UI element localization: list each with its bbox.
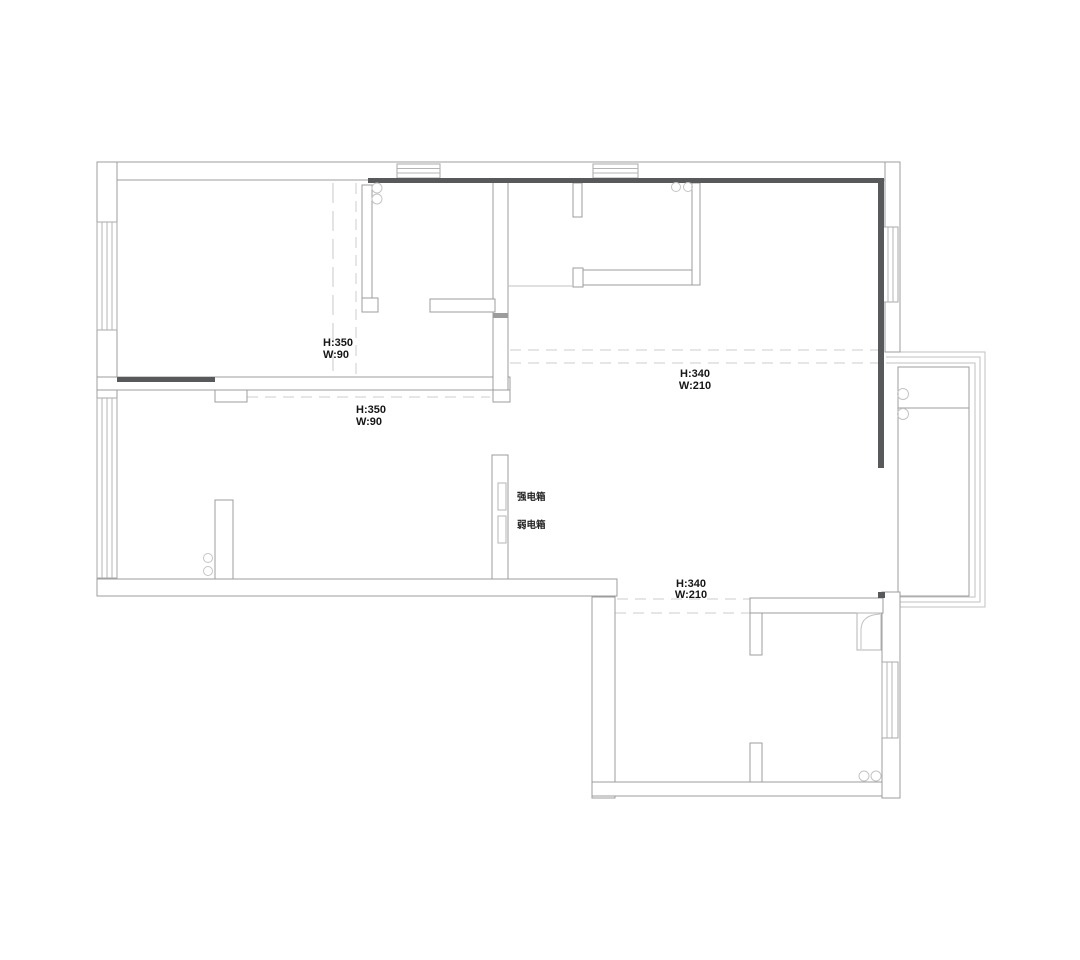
- wall-joint-tick: [493, 313, 508, 318]
- window-frame: [882, 662, 898, 738]
- wall-innerroom-right: [692, 183, 700, 285]
- interior-walls: [215, 180, 762, 782]
- wall-br-stub: [750, 743, 762, 782]
- dashed-openings: [247, 183, 884, 613]
- fixture-circle: [859, 771, 869, 781]
- wall-br-leg: [750, 613, 762, 655]
- wall-innerroom-stub: [573, 183, 582, 217]
- balcony-inner-rail: [898, 367, 969, 596]
- wall-smallroom-bottom: [430, 299, 495, 312]
- wall-center-block: [493, 390, 510, 402]
- fixture-circle: [372, 183, 382, 193]
- dim-label: W:210: [679, 380, 711, 392]
- wall-br-bottom: [592, 782, 900, 796]
- balcony-circle-symbol: [898, 409, 909, 420]
- wall-lowerleft-stub: [215, 500, 233, 579]
- fixture-circle: [672, 183, 681, 192]
- wall-innerroom-bottom: [583, 270, 692, 285]
- floor-plan-canvas: 强电箱 弱电箱 H:350 W:90 H:350 W:90 H:340 W:21…: [0, 0, 1080, 960]
- fixture-circles: [204, 183, 882, 782]
- wall-top: [97, 162, 900, 180]
- wall-bottom-band: [97, 579, 617, 596]
- wall-br-top: [750, 598, 883, 613]
- wall-br-left: [592, 597, 615, 798]
- dim-label: W:90: [356, 416, 382, 428]
- fixture-circle: [871, 771, 881, 781]
- dark-wall-br-tick: [878, 592, 885, 598]
- wall-mid-step: [215, 390, 247, 402]
- dim-label: H:350: [323, 337, 353, 349]
- wall-center-upper: [493, 180, 508, 390]
- fixture-circle: [204, 554, 213, 563]
- wall-smallroom-left: [362, 185, 372, 298]
- strong-electric-box-label: 强电箱: [517, 491, 546, 503]
- fixture-circle: [204, 567, 213, 576]
- weak-electric-box-label: 弱电箱: [517, 519, 546, 531]
- fixture-circle: [372, 194, 382, 204]
- door-swing: [857, 613, 881, 650]
- window-left-lower: [97, 398, 117, 578]
- balcony-frame-outer: [886, 352, 985, 607]
- dim-label: W:90: [323, 349, 349, 361]
- fixture-circle: [684, 183, 693, 192]
- weak-electric-box-symbol: [498, 516, 506, 543]
- wall-innerroom-step: [573, 268, 583, 287]
- wall-smallroom-foot: [362, 298, 378, 312]
- window-frame: [883, 227, 898, 302]
- dark-wall-mid-left: [117, 377, 215, 382]
- balcony-circle-symbol: [898, 389, 909, 400]
- dark-wall-top: [368, 178, 884, 183]
- dim-label: W:210: [675, 589, 707, 601]
- window-top-2: [593, 164, 638, 178]
- window-frame: [397, 164, 440, 178]
- window-right-upper: [883, 227, 898, 302]
- balcony: [886, 352, 985, 607]
- dark-wall-right: [878, 183, 884, 468]
- floor-plan-drawing: 强电箱 弱电箱 H:350 W:90 H:350 W:90 H:340 W:21…: [0, 0, 1080, 960]
- dim-label: H:340: [680, 368, 710, 380]
- window-left-upper: [97, 222, 117, 330]
- window-bottom-right: [882, 662, 898, 738]
- strong-electric-box-symbol: [498, 483, 506, 510]
- dim-label: H:350: [356, 404, 386, 416]
- balcony-frame-middle: [886, 357, 980, 602]
- window-frame: [593, 164, 638, 178]
- window-top-1: [397, 164, 440, 178]
